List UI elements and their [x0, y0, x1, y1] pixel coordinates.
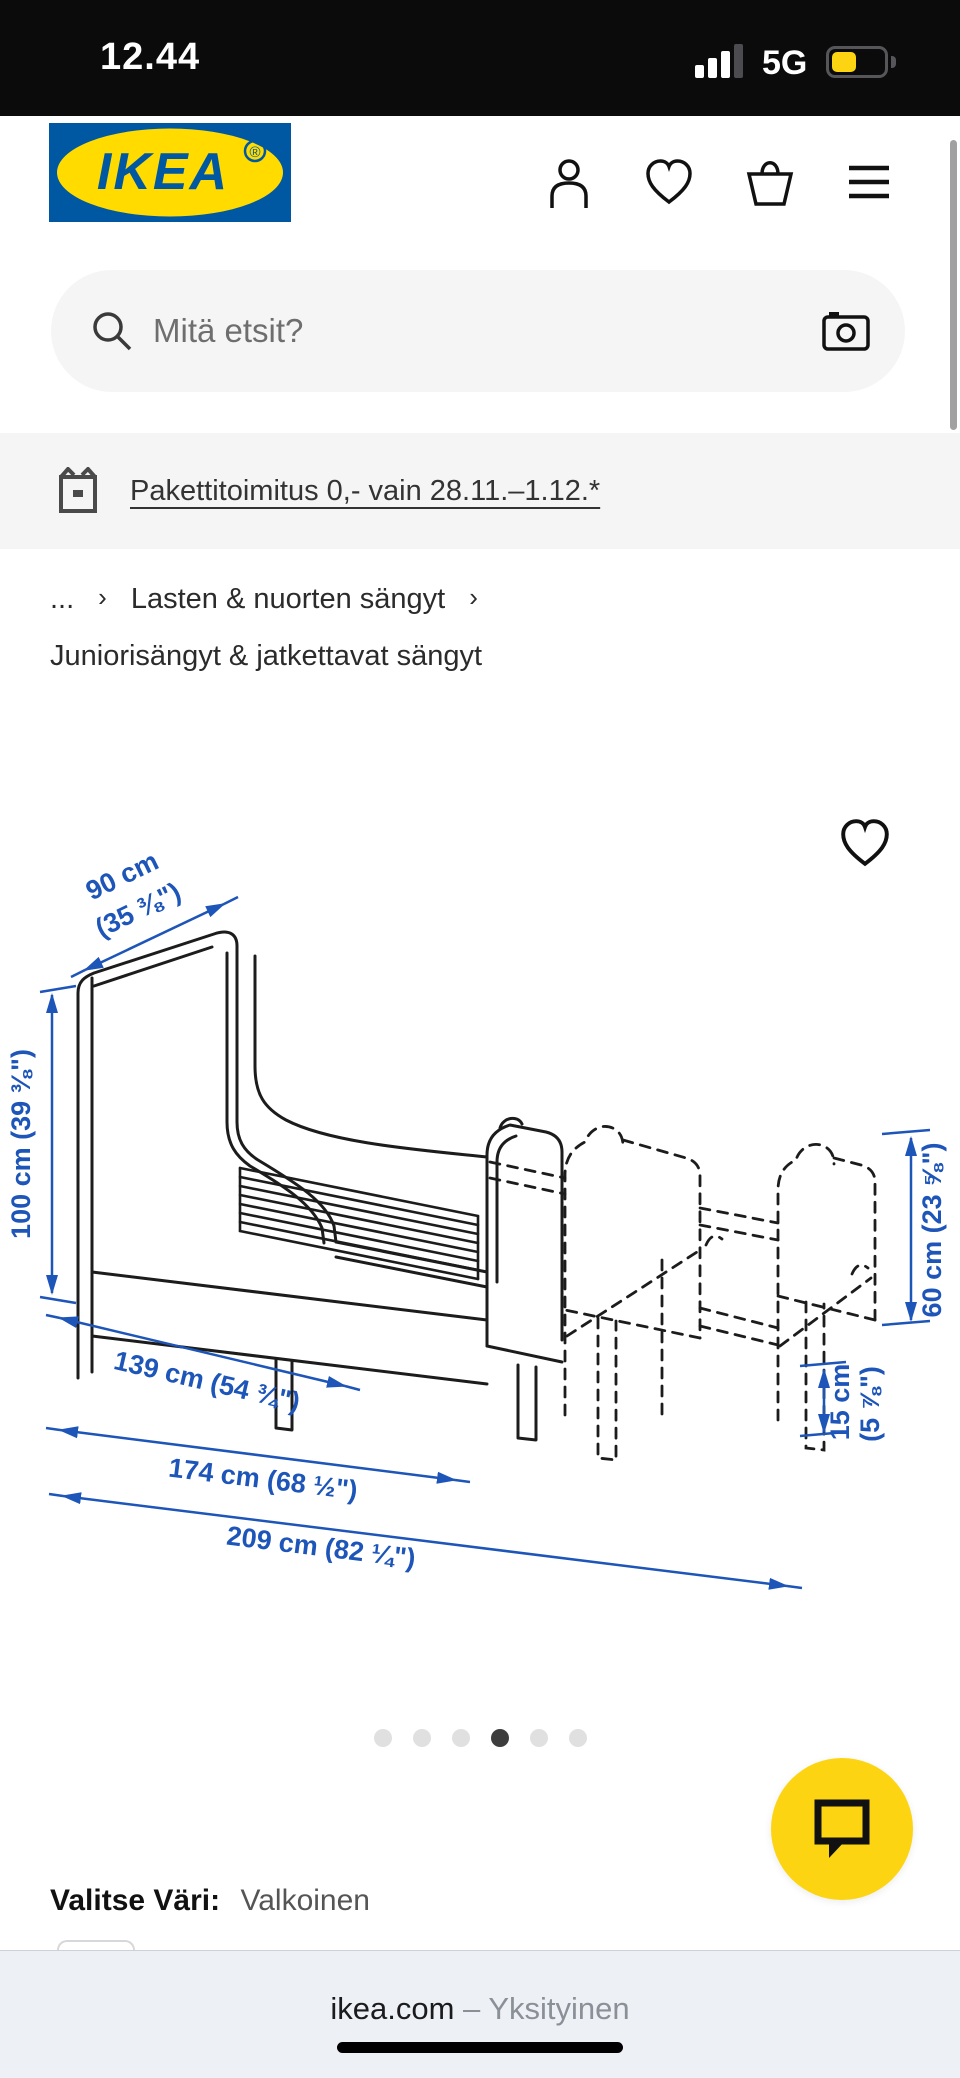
bed-extension-dashed — [490, 1126, 875, 1460]
carousel-dot-1[interactable] — [374, 1729, 392, 1747]
status-time: 12.44 — [100, 36, 200, 79]
browser-private-mode-label: Yksityinen — [488, 1991, 629, 2026]
color-selector-value: Valkoinen — [240, 1884, 370, 1917]
browser-separator: – — [463, 1991, 480, 2026]
network-type-label: 5G — [762, 44, 807, 83]
cart-button[interactable] — [744, 156, 796, 208]
registered-mark: ® — [249, 144, 260, 161]
battery-nub — [891, 56, 896, 68]
dim-height-label: 100 cm (39 ⅜") — [6, 1049, 36, 1239]
breadcrumb: ... › Lasten & nuorten sängyt › — [50, 583, 478, 616]
dim-end-panel-label: 60 cm (23 ⅝") — [917, 1143, 947, 1318]
signal-strength-icon — [695, 42, 751, 78]
mobile-browser-screen: 12.44 5G IKEA ® — [0, 0, 960, 2078]
account-button[interactable] — [543, 156, 595, 208]
favorites-button[interactable] — [643, 156, 695, 208]
home-indicator[interactable] — [337, 2042, 623, 2053]
heart-icon — [838, 816, 892, 870]
search-input[interactable] — [153, 312, 821, 350]
dim-length-min-label: 139 cm (54 ¾") — [111, 1345, 303, 1417]
browser-address-bar[interactable]: ikea.com – Yksityinen — [0, 1950, 960, 2078]
carousel-dot-2[interactable] — [413, 1729, 431, 1747]
dim-extension-label-2: (5 ⅞") — [855, 1366, 885, 1442]
carousel-dot-6[interactable] — [569, 1729, 587, 1747]
color-selector-label: Valitse Väri: — [50, 1884, 220, 1917]
menu-button[interactable] — [843, 156, 895, 208]
hamburger-icon — [843, 156, 895, 208]
dim-extension-label-1: 15 cm — [825, 1364, 855, 1441]
carousel-dot-3[interactable] — [452, 1729, 470, 1747]
product-dimension-drawing: 90 cm (35 ⅜") 100 cm (39 ⅜") 139 cm (54 … — [0, 780, 960, 1660]
heart-icon — [643, 156, 695, 208]
breadcrumb-item-category[interactable]: Lasten & nuorten sängyt — [131, 583, 445, 616]
promo-banner-link[interactable]: Pakettitoimitus 0,- vain 28.11.–1.12.* — [130, 475, 600, 508]
color-selector: Valitse Väri: Valkoinen — [50, 1884, 370, 1918]
person-icon — [543, 156, 595, 208]
chevron-right-icon: › — [98, 582, 107, 613]
browser-site-label[interactable]: ikea.com — [330, 1991, 454, 2026]
ikea-logo-text: IKEA — [97, 143, 229, 201]
page-scrollbar[interactable] — [950, 140, 957, 430]
status-bar: 12.44 5G — [0, 0, 960, 116]
basket-icon — [744, 156, 796, 208]
ikea-logo[interactable]: IKEA ® — [49, 123, 291, 222]
carousel-dot-4[interactable] — [491, 1729, 509, 1747]
camera-icon[interactable] — [821, 308, 871, 354]
speech-bubble-icon — [813, 1798, 871, 1860]
chevron-right-icon: › — [469, 582, 478, 613]
favorite-product-button[interactable] — [838, 816, 892, 870]
carousel-dot-5[interactable] — [530, 1729, 548, 1747]
dim-length-mid-label: 174 cm (68 ½") — [167, 1453, 359, 1506]
magnifier-icon — [89, 308, 135, 354]
package-icon — [58, 467, 98, 515]
chat-button[interactable] — [771, 1758, 913, 1900]
breadcrumb-ellipsis[interactable]: ... — [50, 583, 74, 616]
breadcrumb-item-current[interactable]: Juniorisängyt & jatkettavat sängyt — [50, 640, 482, 673]
promo-banner[interactable]: Pakettitoimitus 0,- vain 28.11.–1.12.* — [0, 433, 960, 549]
search-bar[interactable] — [51, 270, 905, 392]
battery-fill — [832, 52, 856, 72]
carousel-dots — [0, 1729, 960, 1747]
